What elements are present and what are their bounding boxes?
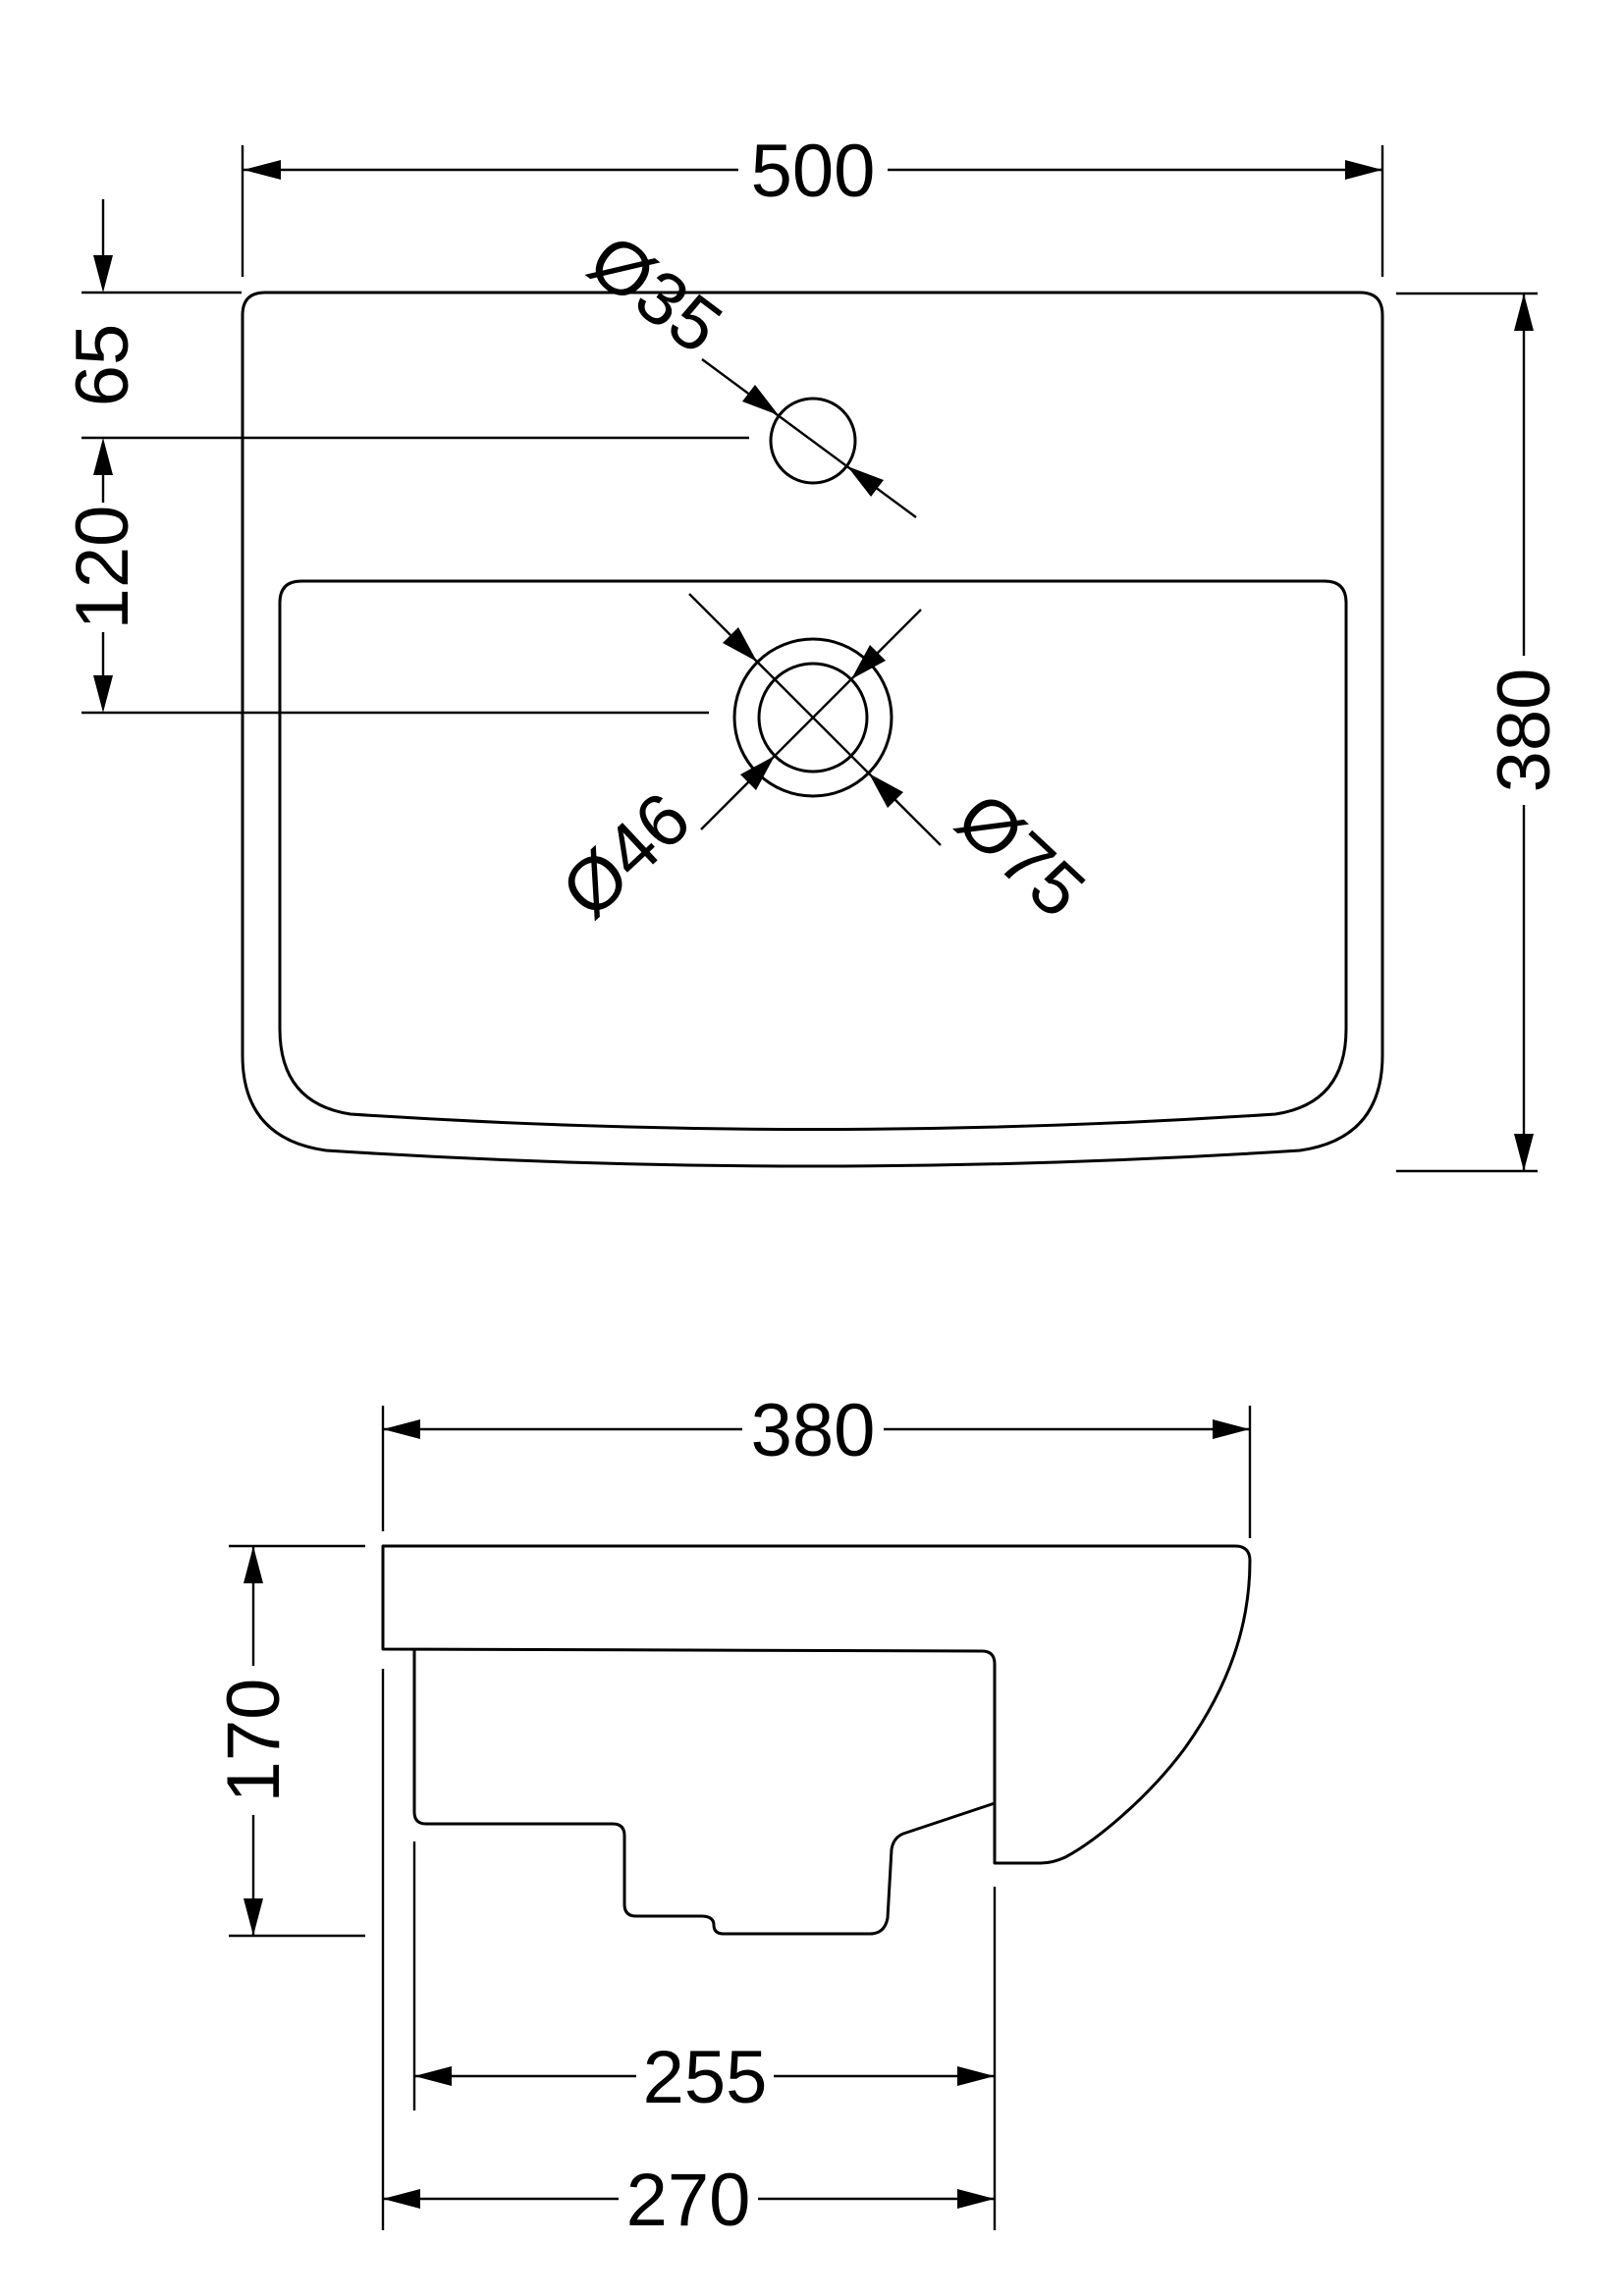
dim-label-120: 120	[61, 506, 144, 630]
dim-65-tap-offset: 65	[61, 199, 242, 475]
arrowhead-right	[1345, 160, 1382, 180]
dim-380-side-width: 380	[383, 1389, 1250, 1538]
arrowhead-right	[957, 2189, 995, 2209]
dim-380-depth: 380	[1396, 294, 1566, 1171]
arrowhead-nw	[742, 385, 779, 415]
arrowhead-right	[957, 2066, 995, 2086]
arrowhead-down	[93, 675, 113, 713]
dim-label-d35: Ø35	[573, 218, 736, 369]
callout-tap-hole-diameter: Ø35	[573, 218, 916, 517]
dim-label-d46: Ø46	[546, 776, 706, 934]
dim-label-d75: Ø75	[941, 776, 1101, 934]
dim-label-380-side: 380	[751, 1389, 876, 1472]
arrowhead-right	[1213, 1419, 1250, 1439]
arrowhead-up	[1514, 294, 1534, 331]
arrowhead-se	[847, 466, 884, 497]
side-sump-profile	[414, 1651, 995, 1934]
arrowhead-left	[414, 2066, 452, 2086]
dim-label-500: 500	[751, 130, 876, 213]
callout-line	[689, 594, 941, 845]
dim-label-270: 270	[626, 2159, 751, 2242]
side-view: 380 170 255 270	[212, 1389, 1250, 2242]
plan-outer-rim-outline	[243, 293, 1382, 1166]
dim-label-65: 65	[61, 324, 144, 407]
arrowhead-down	[93, 255, 113, 293]
arrowhead-down	[243, 1898, 263, 1936]
dim-label-170: 170	[212, 1679, 296, 1803]
dim-120-tap-to-waste: 120	[61, 475, 144, 713]
arrowhead-left	[383, 1419, 420, 1439]
dim-500-width: 500	[243, 130, 1382, 277]
arrowhead-down	[1514, 1134, 1534, 1171]
plan-view: 500 65 120 Ø35	[61, 130, 1566, 1171]
dim-label-380: 380	[1483, 668, 1566, 793]
dim-label-255: 255	[643, 2036, 768, 2119]
dim-170-height: 170	[212, 1546, 365, 1936]
side-outer-profile	[383, 1546, 1250, 1863]
arrowhead-left	[243, 160, 281, 180]
technical-drawing-page: 500 65 120 Ø35	[0, 0, 1623, 2296]
callout-waste-inner-diameter: Ø46	[546, 610, 921, 934]
dim-270-base-width: 270	[383, 1669, 995, 2242]
basin-drawing-canvas: 500 65 120 Ø35	[0, 0, 1623, 2296]
arrowhead-left	[383, 2189, 420, 2209]
arrowhead-up	[93, 438, 113, 475]
